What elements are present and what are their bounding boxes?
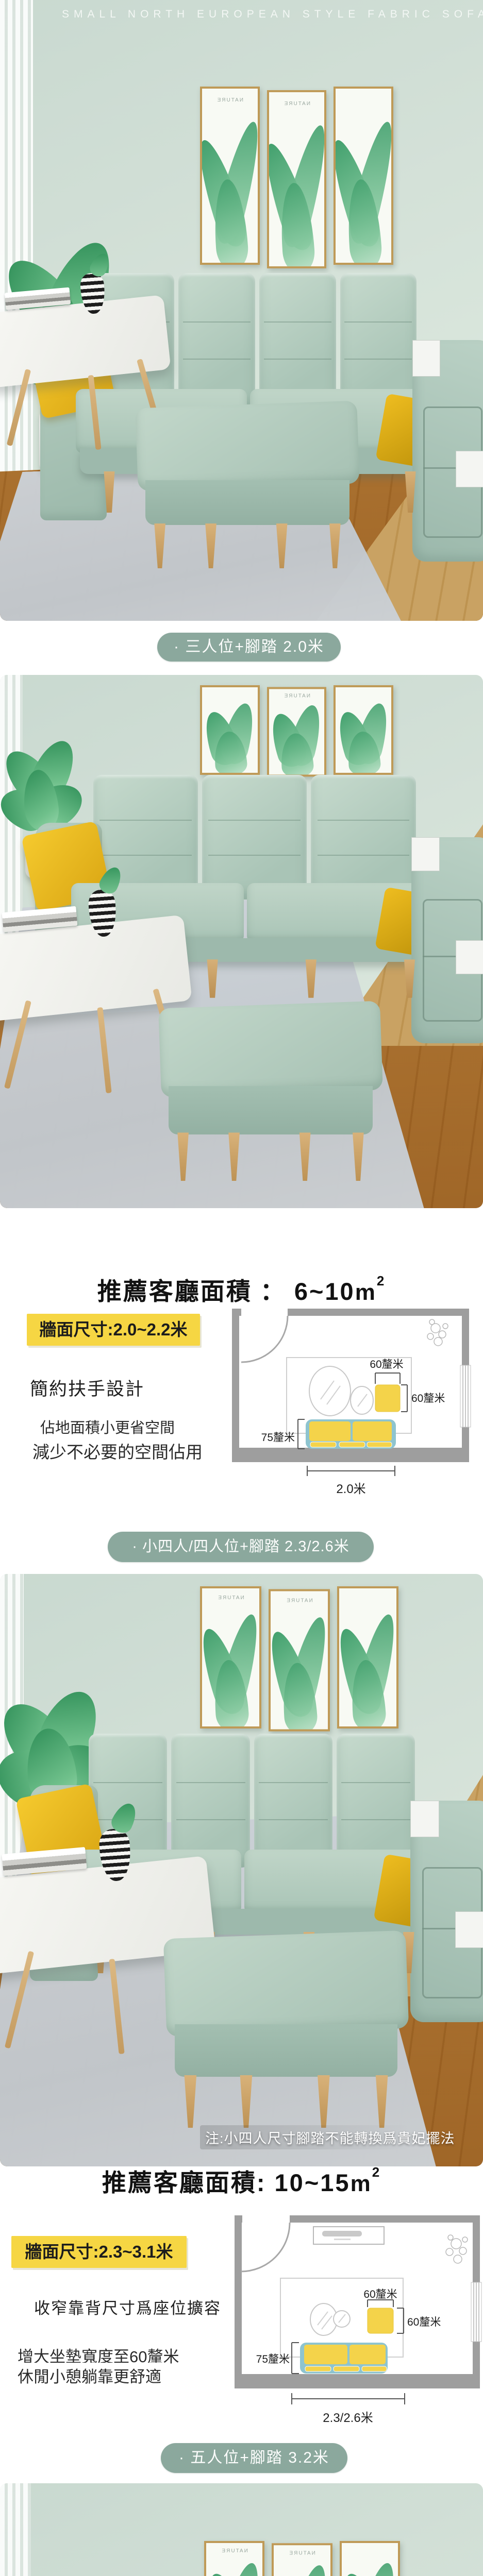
wall-size-label: 牆面尺寸:2.0~2.2米	[27, 1314, 200, 1346]
leaf-painting: NATURE	[267, 687, 327, 776]
hero-photo-three-seater: NATURE NATURE	[0, 0, 483, 621]
painting-leaf-art	[289, 2562, 332, 2576]
painting-caption: NATURE	[206, 2548, 262, 2554]
sofa-back-cushion	[337, 1734, 415, 1868]
footstool-ottoman	[160, 1005, 381, 1190]
leaf-painting: NATURE	[204, 2541, 264, 2576]
painting-leaf-art	[356, 2560, 399, 2576]
dim-sofa-depth: 75釐米	[249, 2351, 290, 2366]
pocket-magazine	[410, 1801, 439, 1837]
wall-paintings: NATURE NATURE	[200, 87, 393, 261]
painting-caption: NATURE	[269, 101, 325, 107]
leaf-painting	[337, 1586, 398, 1728]
leaf-painting: NATURE	[267, 90, 327, 268]
dim-footstool-width: 60釐米	[361, 1356, 412, 1371]
pocket-magazine	[455, 1911, 483, 1948]
leaf-painting: NATURE	[269, 1589, 330, 1732]
painting-caption: NATURE	[271, 1598, 328, 1604]
sofa-right-arm	[411, 837, 483, 1043]
unit-m: m	[351, 2171, 372, 2196]
floor-plan-diagram-1: 牆面尺寸:2.0~2.2米 簡約扶手設計 佔地面積小更省空間 減少不必要的空間佔…	[0, 1298, 483, 1504]
diagram-line2: 休閒小憩躺靠更舒適	[13, 2363, 165, 2388]
dim-footstool-depth: 60釐米	[411, 1390, 445, 1405]
painting-caption: NATURE	[269, 693, 325, 699]
wall-paintings: NATURE NATURE	[204, 2541, 400, 2576]
footstool-ottoman	[137, 404, 358, 577]
pocket-magazine	[456, 451, 483, 487]
painting-leaf-art	[221, 2560, 264, 2576]
sofa-back-cushion	[178, 273, 255, 407]
dim-sofa-length: 2.3/2.6米	[308, 2408, 388, 2426]
leaf-painting	[334, 87, 393, 265]
pocket-magazine	[411, 837, 440, 871]
dim-sofa-depth: 75釐米	[254, 1429, 295, 1445]
footstool-ottoman	[165, 1935, 407, 2138]
wall-paintings: NATURE	[200, 685, 393, 771]
dim-sofa-length: 2.0米	[320, 1479, 382, 1497]
sofa-back-cushion	[259, 273, 336, 407]
leaf-painting	[200, 685, 260, 775]
sofa-right-arm	[412, 340, 483, 562]
dim-footstool-depth: 60釐米	[407, 2314, 441, 2329]
diagram-line2: 減少不必要的空間佔用	[28, 1437, 207, 1464]
sofa-back-cushion	[202, 775, 307, 900]
diagram-headline: 收窄靠背尺寸爲座位擴容	[31, 2294, 224, 2319]
dim-footstool-width: 60釐米	[355, 2286, 406, 2301]
sofa-back-cushions	[93, 775, 416, 900]
recommended-area-title-2: 推薦客廳面積: 10~15m2	[0, 2163, 483, 2198]
diagram-headline: 簡約扶手設計	[27, 1374, 147, 1402]
diagram-line1: 佔地面積小更省空間	[36, 1415, 179, 1438]
unit-sup: 2	[377, 1273, 386, 1289]
painting-caption: NATURE	[202, 1595, 259, 1601]
photo-four-seater: NATURE NATURE	[0, 1574, 483, 2166]
product-detail-page: NATURE NATURE	[0, 0, 483, 2576]
leaf-painting: NATURE	[272, 2543, 332, 2576]
pocket-magazine	[412, 340, 441, 377]
sofa-back-cushion	[311, 775, 415, 900]
size-badge-five-seater: · 五人位+腳踏 3.2米	[161, 2443, 347, 2473]
photo-three-seater: NATURE	[0, 675, 483, 1208]
photo-five-seater: NATURE NATURE	[0, 2483, 483, 2576]
size-badge-four-seater: · 小四人/四人位+腳踏 2.3/2.6米	[108, 1532, 374, 1562]
sofa-right-arm	[410, 1801, 483, 2022]
window-curtain	[0, 2483, 31, 2576]
leaf-painting: NATURE	[200, 1586, 261, 1728]
pocket-magazine	[456, 940, 483, 974]
leaf-painting	[334, 685, 393, 775]
wall-paintings: NATURE NATURE	[200, 1586, 398, 1724]
painting-caption: NATURE	[202, 97, 258, 103]
floor-plan-diagram-2: 牆面尺寸:2.3~3.1米 收窄靠背尺寸爲座位擴容 增大坐墊寬度至60釐米 休閒…	[0, 2213, 483, 2437]
sofa-back-cushion	[340, 273, 417, 407]
hero-banner-text: SMALL NORTH EUROPEAN STYLE FABRIC SOFA	[0, 8, 483, 21]
area-value: 10~15	[275, 2169, 351, 2196]
wall-size-label: 牆面尺寸:2.3~3.1米	[11, 2236, 187, 2268]
title-label: 推薦客廳面積:	[102, 2169, 267, 2196]
unit-sup: 2	[372, 2164, 381, 2180]
sofa-back-cushion	[254, 1734, 332, 1868]
footstool-note-text: 注:小四人尺寸腳踏不能轉換爲貴妃擺法	[200, 2125, 446, 2149]
painting-caption: NATURE	[274, 2551, 330, 2556]
size-badge-three-seater: · 三人位+腳踏 2.0米	[157, 633, 341, 662]
leaf-painting: NATURE	[200, 87, 260, 265]
leaf-painting	[340, 2541, 400, 2576]
